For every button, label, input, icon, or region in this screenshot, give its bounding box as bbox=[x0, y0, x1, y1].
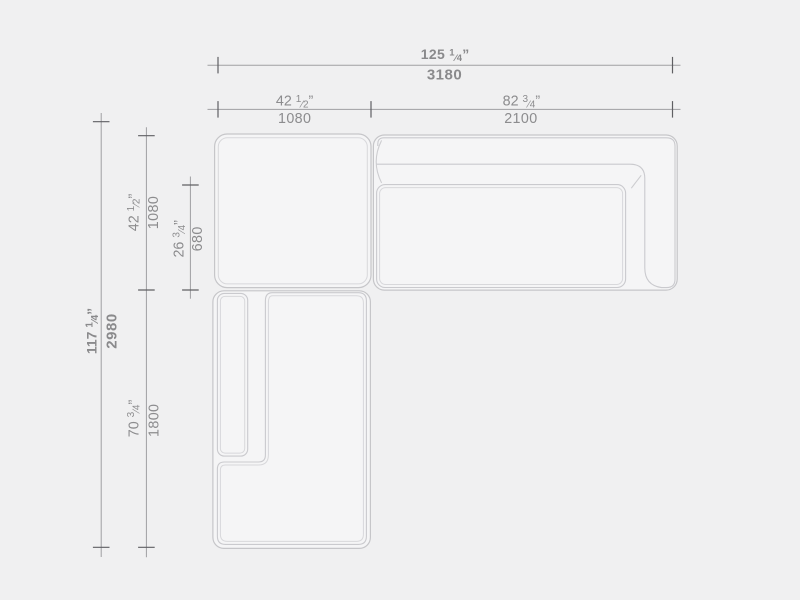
svg-text:70 3⁄4”: 70 3⁄4” bbox=[126, 400, 143, 438]
svg-text:680: 680 bbox=[190, 226, 206, 251]
svg-text:42 1⁄2”: 42 1⁄2” bbox=[276, 93, 314, 110]
svg-text:2100: 2100 bbox=[504, 111, 537, 127]
svg-text:2980: 2980 bbox=[104, 313, 121, 348]
svg-text:42 1⁄2”: 42 1⁄2” bbox=[126, 194, 143, 232]
svg-text:1080: 1080 bbox=[146, 196, 162, 229]
svg-text:1080: 1080 bbox=[278, 111, 311, 127]
svg-text:82 3⁄4”: 82 3⁄4” bbox=[503, 93, 541, 110]
svg-text:26 3⁄4”: 26 3⁄4” bbox=[171, 220, 188, 258]
svg-text:117 1⁄4”: 117 1⁄4” bbox=[84, 308, 101, 354]
svg-text:1800: 1800 bbox=[146, 404, 162, 437]
svg-text:125 1⁄4”: 125 1⁄4” bbox=[421, 46, 470, 64]
svg-text:3180: 3180 bbox=[427, 67, 462, 84]
